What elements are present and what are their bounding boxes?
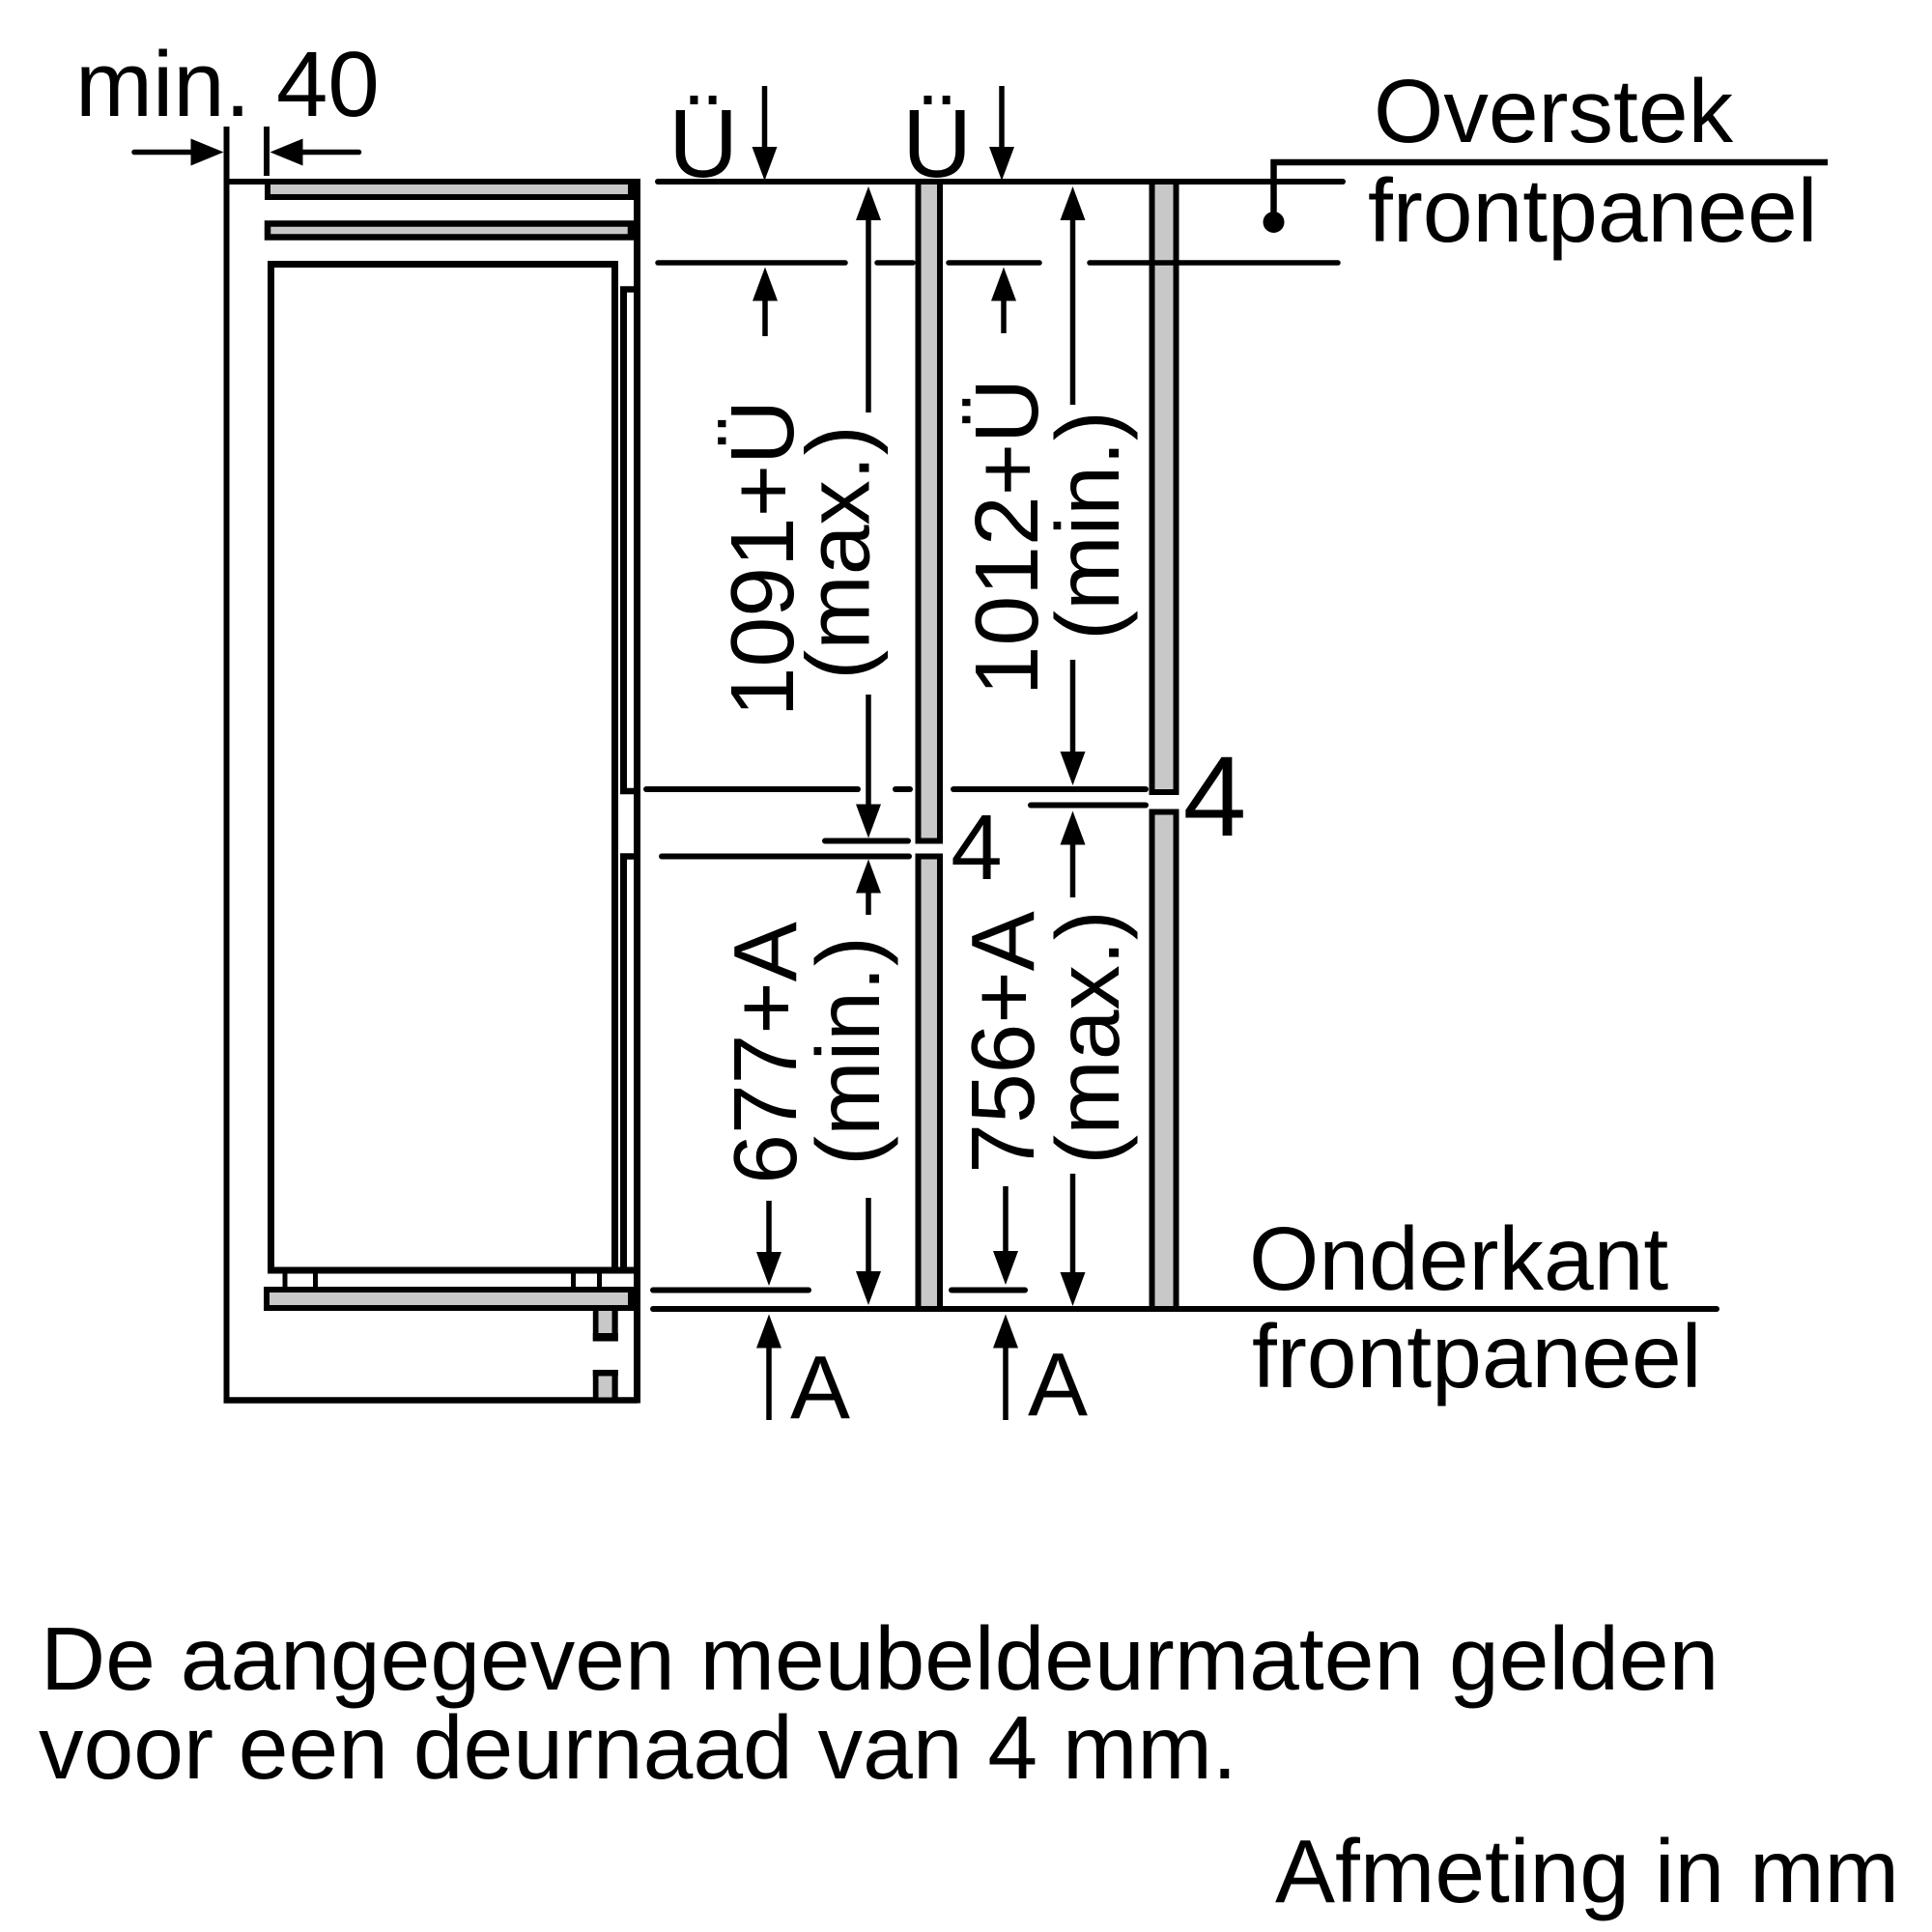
svg-text:(max.): (max.): [788, 425, 889, 679]
svg-text:Afmeting in mm: Afmeting in mm: [1275, 1821, 1899, 1921]
svg-text:Overstek: Overstek: [1374, 61, 1734, 161]
svg-text:4: 4: [1183, 733, 1247, 861]
svg-text:voor een deurnaad van 4 mm.: voor een deurnaad van 4 mm.: [39, 1697, 1237, 1798]
svg-text:frontpaneel: frontpaneel: [1368, 160, 1817, 261]
svg-text:Ü: Ü: [668, 90, 738, 198]
svg-text:De aangegeven meubeldeurmaten: De aangegeven meubeldeurmaten gelden: [41, 1608, 1719, 1709]
svg-text:(max.): (max.): [1037, 910, 1138, 1164]
svg-text:min. 40: min. 40: [75, 33, 380, 136]
svg-text:4: 4: [951, 796, 1002, 899]
svg-text:(min.): (min.): [1037, 411, 1138, 640]
svg-text:frontpaneel: frontpaneel: [1252, 1306, 1701, 1406]
svg-text:(min.): (min.): [798, 936, 898, 1166]
svg-text:A: A: [1028, 1334, 1088, 1435]
svg-text:Onderkant: Onderkant: [1249, 1208, 1668, 1309]
svg-text:A: A: [790, 1337, 850, 1437]
svg-text:Ü: Ü: [902, 90, 972, 198]
